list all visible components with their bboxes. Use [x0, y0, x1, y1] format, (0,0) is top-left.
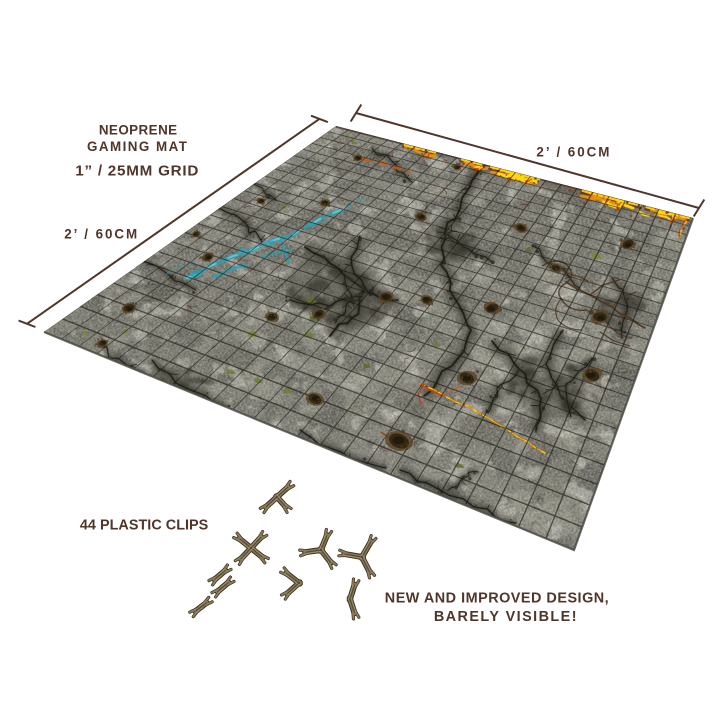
svg-text:2’ / 60CM: 2’ / 60CM: [64, 226, 139, 241]
svg-text:44 PLASTIC CLIPS: 44 PLASTIC CLIPS: [80, 518, 209, 534]
svg-text:2’ / 60CM: 2’ / 60CM: [536, 145, 611, 160]
svg-text:1” / 25MM GRID: 1” / 25MM GRID: [75, 162, 199, 179]
svg-text:NEOPRENE: NEOPRENE: [99, 122, 178, 137]
svg-text:GAMING MAT: GAMING MAT: [87, 139, 188, 154]
svg-text:BARELY VISIBLE!: BARELY VISIBLE!: [434, 609, 578, 625]
svg-text:NEW AND IMPROVED DESIGN,: NEW AND IMPROVED DESIGN,: [385, 590, 609, 606]
